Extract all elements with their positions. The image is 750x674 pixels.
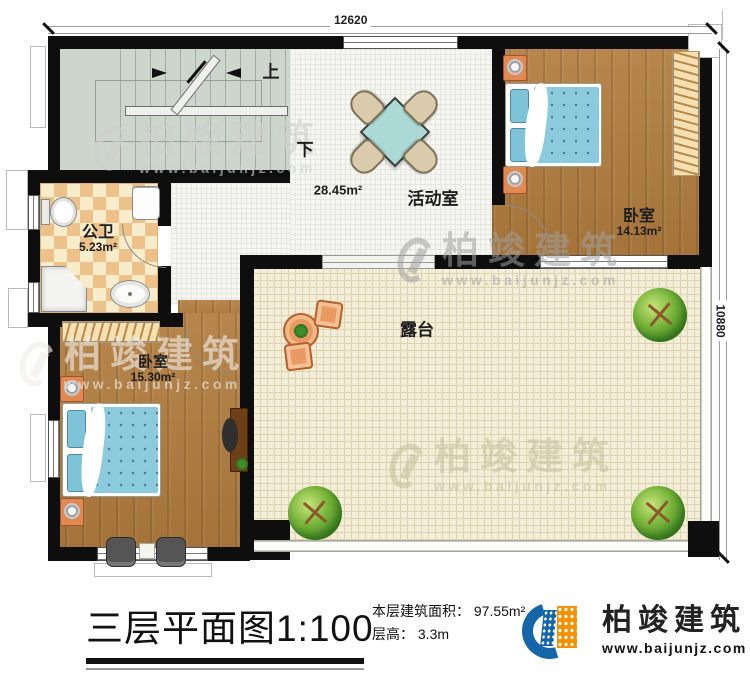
laundry-tub-icon (132, 186, 160, 220)
wall (48, 36, 343, 49)
lamp-icon (64, 503, 80, 519)
lamp-icon (507, 59, 523, 75)
toilet-icon (41, 199, 50, 225)
label-activity-area: 28.45m² (314, 183, 362, 198)
logo-name: 柏竣建筑 (602, 606, 747, 636)
label-bedroom-bottom: 卧室 (138, 351, 168, 372)
label-bedroom-top-area: 14.13m² (617, 224, 662, 238)
title-underline-thick (86, 658, 364, 664)
terrace-door-opening (322, 255, 435, 269)
wall (435, 255, 540, 269)
floor-area-value: 97.55m² (474, 603, 525, 619)
terrace-railing-bottom (254, 540, 700, 552)
plan-scale: 1:100 (276, 608, 374, 649)
label-bathroom-area: 5.23m² (79, 240, 117, 254)
window-sill (8, 288, 28, 328)
window-bedroom-bottom-left (48, 420, 60, 478)
wardrobe-icon (672, 51, 700, 176)
window-sill (30, 414, 46, 482)
wall (458, 36, 712, 49)
logo-building-orange-icon (557, 606, 577, 648)
label-stairs-down: 下 (297, 136, 314, 161)
window-sill (6, 170, 28, 230)
stair-direction-arrow-right (226, 68, 241, 78)
chair-icon (106, 537, 136, 567)
wall (48, 36, 60, 183)
logo-url: www.baijunjz.com (602, 640, 747, 656)
label-bathroom: 公卫 (82, 218, 114, 242)
lamp-icon (64, 380, 80, 396)
label-stairs-up: 上 (263, 58, 280, 83)
window-bathroom-left (28, 195, 40, 230)
wall (699, 36, 712, 267)
label-bedroom-top: 卧室 (623, 202, 655, 226)
title-underline-thin (86, 668, 364, 670)
label-activity: 活动室 (408, 185, 459, 210)
wall (158, 266, 171, 313)
terrace-stool-icon (313, 299, 343, 329)
side-table-icon (139, 543, 155, 559)
dimension-line-top (48, 26, 712, 34)
plant-icon (236, 458, 248, 470)
terrace-stool-icon (283, 341, 313, 371)
lamp-icon (507, 171, 523, 187)
floor-area-line: 本层建筑面积： 97.55m² (372, 600, 525, 623)
window-bedroom-top-bottom (540, 255, 668, 269)
wall (28, 230, 40, 282)
floor-area-label: 本层建筑面积： (372, 603, 470, 619)
stair-handrail (125, 106, 288, 116)
plan-title-block: 三层平面图1:100 (86, 598, 374, 670)
company-logo: 柏竣建筑 www.baijunjz.com (520, 600, 747, 662)
terrace-plant-icon (294, 324, 308, 338)
wall (28, 183, 40, 195)
window-top (343, 36, 458, 49)
plan-title: 三层平面图1:100 (86, 598, 374, 652)
dimension-extension (722, 10, 723, 40)
logo-mark (520, 600, 592, 662)
floor-height-label: 层高： (372, 626, 414, 642)
chair-icon (156, 537, 186, 567)
bed-icon (62, 403, 161, 497)
dimension-right-value: 10880 (714, 300, 728, 341)
terrace-railing-right (700, 267, 712, 545)
desk-chair-icon (222, 418, 238, 452)
wall (208, 547, 250, 561)
wall (48, 327, 60, 420)
floor-stats: 本层建筑面积： 97.55m² 层高： 3.3m (372, 600, 525, 646)
sink-drain-icon (128, 292, 132, 296)
bed-icon (505, 83, 602, 167)
window-sill (30, 46, 46, 128)
floor-height-line: 层高： 3.3m (372, 623, 525, 646)
wardrobe-icon (62, 321, 160, 343)
plan-title-text: 三层平面图 (86, 608, 276, 649)
dimension-top-value: 12620 (330, 13, 371, 27)
floor-height-value: 3.3m (418, 626, 449, 642)
label-terrace: 露台 (400, 316, 434, 341)
stair-direction-arrow-left (152, 68, 167, 78)
logo-text-block: 柏竣建筑 www.baijunjz.com (602, 606, 747, 656)
toilet-bowl-icon (50, 197, 77, 227)
wall (240, 255, 322, 269)
wall (48, 547, 97, 561)
wall (28, 170, 290, 183)
floor-plan: 柏竣建筑 www.baijunjz.com 柏竣建筑 www.baijunjz.… (0, 0, 750, 674)
window-bathroom-left-2 (28, 282, 40, 313)
label-bedroom-bottom-area: 15.30m² (131, 370, 176, 384)
